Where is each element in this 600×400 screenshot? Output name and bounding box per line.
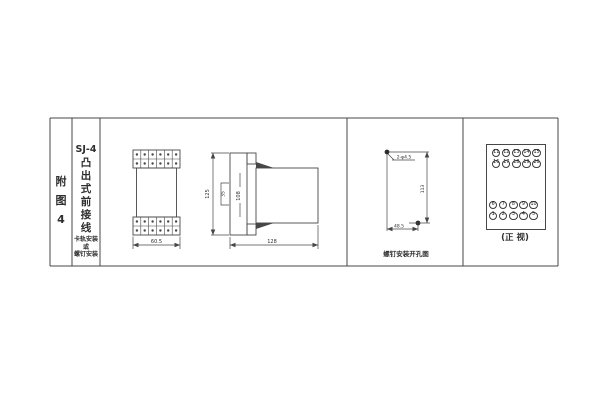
side-depth-label: 128 <box>267 239 277 245</box>
front-view-drawing: 60.5 <box>133 150 180 249</box>
terminal-pin: 20 <box>532 160 540 168</box>
terminal-layout-caption: (正 视) <box>488 231 542 243</box>
front-width-label: 60.5 <box>151 239 162 245</box>
side-height-label: 125 <box>205 189 211 199</box>
terminal-pin: 3 <box>509 212 517 220</box>
drill-diagram: 2-φ4.5 113 48.5 <box>385 150 430 231</box>
terminal-row-11-15: 1112131415 <box>492 149 542 157</box>
drill-vertical-label: 113 <box>420 185 426 194</box>
terminal-row-1-5: 12345 <box>489 212 539 220</box>
terminal-pin: 14 <box>522 149 530 157</box>
terminal-pin: 1 <box>489 212 497 220</box>
terminal-pin: 18 <box>512 160 520 168</box>
manual-figure-page: 60.5 125 35 <box>0 0 600 400</box>
terminal-pin: 15 <box>532 149 540 157</box>
body-height-label: 108 <box>236 191 242 201</box>
mounting-note: 卡轨安装 或 螺钉安装 <box>69 236 103 259</box>
terminal-pin: 10 <box>529 201 537 209</box>
drill-diagram-caption: 螺钉安装开孔图 <box>368 248 444 258</box>
rail-clip-label: 35 <box>221 191 227 197</box>
drill-hole-top <box>385 150 390 155</box>
terminal-pin: 7 <box>499 201 507 209</box>
terminal-pin: 8 <box>509 201 517 209</box>
terminal-pin: 4 <box>519 212 527 220</box>
model-label: SJ-4 <box>71 144 101 155</box>
table-frame <box>50 118 558 266</box>
terminal-pin: 19 <box>522 160 530 168</box>
terminal-row-16-20: 1617181920 <box>492 160 542 168</box>
terminal-pin: 11 <box>492 149 500 157</box>
terminal-pin: 6 <box>489 201 497 209</box>
relay-type-label: 凸 出 式 前 接 线 <box>71 157 101 235</box>
terminal-row-6-10: 678910 <box>489 201 539 209</box>
drill-hole-label: 2-φ4.5 <box>397 155 412 161</box>
terminal-pin: 2 <box>499 212 507 220</box>
terminal-pin: 16 <box>492 160 500 168</box>
drill-horizontal-label: 48.5 <box>394 224 404 230</box>
terminal-pin: 12 <box>502 149 510 157</box>
terminal-pin: 17 <box>502 160 510 168</box>
terminal-pin: 5 <box>529 212 537 220</box>
terminal-pin: 13 <box>512 149 520 157</box>
terminal-pin: 9 <box>519 201 527 209</box>
side-depth-dimension <box>230 225 318 249</box>
side-view-drawing: 125 35 108 128 <box>205 153 318 249</box>
